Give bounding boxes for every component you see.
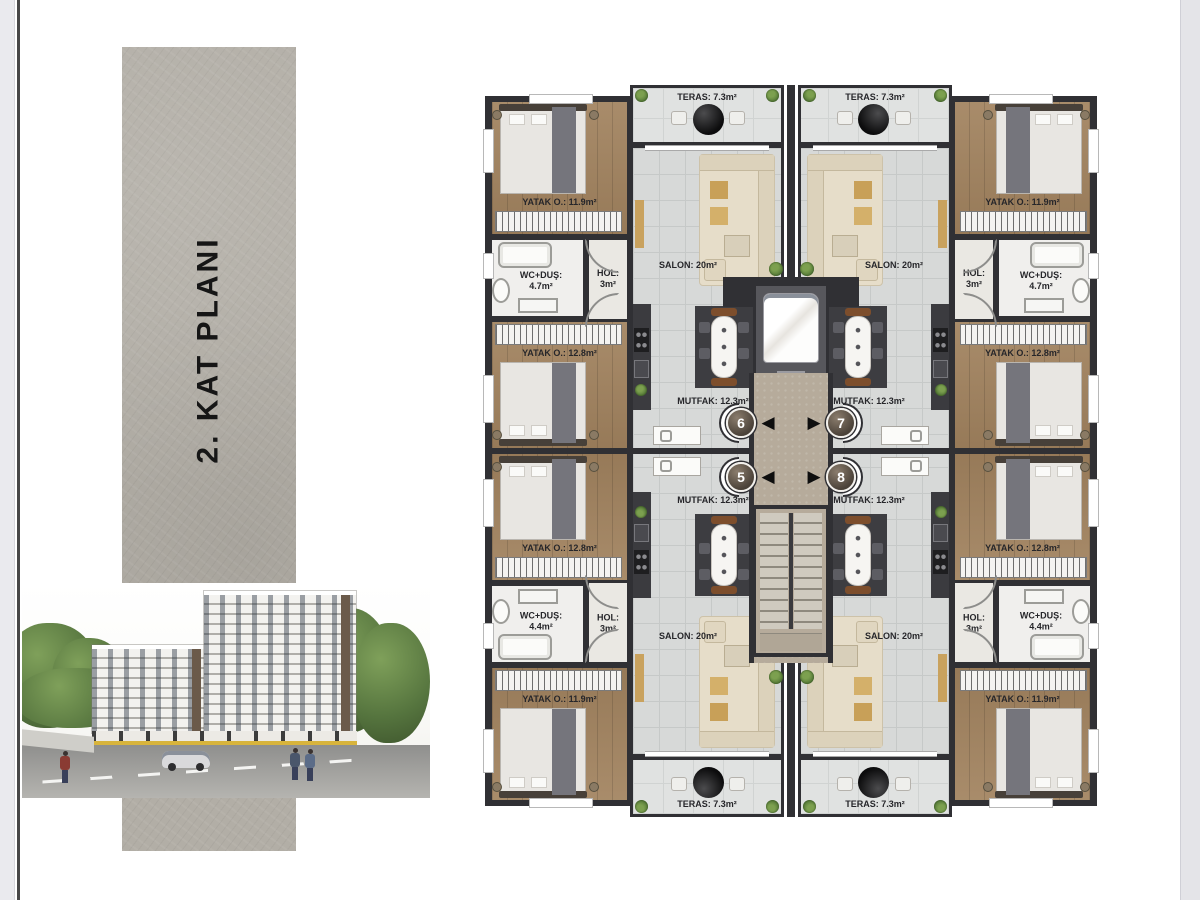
living-kitchen: SALON: 20m² MUTFAK: 12.3m² [798,145,952,451]
dining-bench [711,516,737,524]
room-label-teras: TERAS: 7.3m² [805,799,945,810]
dining-table [845,316,871,378]
terrace-chair [729,111,745,125]
room-label-hol: HOL: 3m² [955,268,993,290]
nightstand [589,110,599,120]
nightstand [492,462,502,472]
pillow [509,466,525,477]
oven-icon [634,524,649,542]
wc-area: 4.7m² [1006,281,1076,292]
dining-chair [872,569,883,580]
cushion [854,207,872,225]
terrace-table [858,104,889,135]
window [483,253,494,279]
cushion [854,703,872,721]
pillow [509,114,525,125]
terrace: TERAS: 7.3m² [798,757,952,817]
dining-chair [738,348,749,359]
cushion [710,181,728,199]
nightstand [492,782,502,792]
terrace: TERAS: 7.3m² [630,757,784,817]
bedroom-1: YATAK O.: 11.9m² [952,665,1093,803]
window [1088,479,1099,527]
tv-unit [938,654,947,702]
bathroom: WC+DUŞ: 4.4m² [489,583,586,665]
dining-chair [833,543,844,554]
wc-area: 4.4m² [1006,621,1076,632]
wardrobe [495,670,622,691]
hol-name: HOL: [955,612,993,623]
dining-bench [711,378,737,386]
terrace-chair [671,777,687,791]
room-label-wc: WC+DUŞ: 4.4m² [506,610,576,632]
terrace: TERAS: 7.3m² [798,85,952,145]
wardrobe [960,324,1087,345]
dining-chair [699,543,710,554]
bed-runner [1006,459,1030,539]
window [1088,729,1099,773]
bed [500,458,586,540]
plant-icon [766,800,779,813]
apartment-unit: YATAK O.: 11.9m² WC+DUŞ: 4.4m² HOL: 3m² … [483,451,791,817]
window [483,623,494,649]
wardrobe [495,324,622,345]
left-edge-bar [0,0,15,900]
dining-table [845,524,871,586]
window [483,375,494,423]
pillow [1057,425,1073,436]
stove-icon [933,328,948,352]
plant-icon [934,800,947,813]
page: 2. KAT PLANI [0,0,1200,900]
room-label-teras: TERAS: 7.3m² [805,92,945,103]
floor-plan-units: YATAK O.: 11.9m² WC+DUŞ: 4.7m² HOL: 3m² … [483,85,1099,817]
plant-icon [935,506,947,518]
coffee-table [832,235,858,257]
dining-area [829,514,887,596]
car [162,751,210,768]
pillow [531,466,547,477]
floor-plan: YATAK O.: 11.9m² WC+DUŞ: 4.7m² HOL: 3m² … [483,85,1099,817]
bathtub [1030,634,1084,660]
pillow [531,114,547,125]
bathtub [498,242,552,268]
nightstand [589,782,599,792]
bathtub [1030,242,1084,268]
room-label-salon: SALON: 20m² [633,260,743,271]
room-label-bedroom1: YATAK O.: 11.9m² [955,197,1090,208]
floor-title: 2. KAT PLANI [124,160,294,540]
pillow [1035,114,1051,125]
window [1088,623,1099,649]
window [989,798,1053,808]
pillow [1035,466,1051,477]
sofa-back [758,155,774,285]
sofa-arm [808,155,882,171]
wardrobe [495,211,622,232]
room-label-wc: WC+DUŞ: 4.7m² [506,270,576,292]
dining-table [711,316,737,378]
nightstand [983,462,993,472]
stair-shaft [341,595,350,731]
coffee-table [724,235,750,257]
left-edge-line [17,0,20,900]
hol-area: 3m² [955,279,993,290]
dining-area [695,306,753,388]
bed [996,708,1082,796]
room-label-bedroom1: YATAK O.: 11.9m² [492,197,627,208]
dining-area [695,514,753,596]
room-label-mutfak: MUTFAK: 12.3m² [809,396,929,407]
pillow [1057,466,1073,477]
room-label-bedroom2: YATAK O.: 12.8m² [492,348,627,359]
terrace-sliding-door [813,145,937,151]
pillow [531,425,547,436]
plant-icon [803,89,816,102]
pillow [1035,777,1051,788]
nightstand [983,110,993,120]
room-label-bedroom2: YATAK O.: 12.8m² [955,543,1090,554]
nightstand [983,782,993,792]
room-label-wc: WC+DUŞ: 4.4m² [1006,610,1076,632]
nightstand [983,430,993,440]
oven-icon [933,360,948,378]
dining-chair [738,543,749,554]
sink [518,589,558,604]
sofa-arm [700,731,774,747]
tv-unit [635,654,644,702]
cushion [710,677,728,695]
bedroom-2: YATAK O.: 12.8m² [489,319,630,451]
room-label-salon: SALON: 20m² [839,631,949,642]
terrace-sliding-door [645,145,769,151]
wc-name: WC+DUŞ: [1006,610,1076,621]
dining-chair [872,543,883,554]
terrace-table [858,767,889,798]
dining-bench [711,308,737,316]
dining-chair [699,348,710,359]
terrace-table [693,104,724,135]
nightstand [1080,462,1090,472]
pedestrian [305,749,315,781]
nightstand [492,430,502,440]
oven-icon [634,360,649,378]
nightstand [492,110,502,120]
living-kitchen: SALON: 20m² MUTFAK: 12.3m² [630,451,784,757]
bed-runner [1006,709,1030,795]
dining-chair [833,322,844,333]
plant-icon [803,800,816,813]
terrace-chair [895,777,911,791]
room-label-mutfak: MUTFAK: 12.3m² [809,495,929,506]
stove-icon [634,328,649,352]
window [483,129,494,173]
terrace-chair [895,111,911,125]
cushion [710,703,728,721]
hol-area: 3m² [589,279,627,290]
kitchen-sink [653,426,701,445]
room-label-bedroom2: YATAK O.: 12.8m² [955,348,1090,359]
wardrobe [960,670,1087,691]
plant-icon [635,506,647,518]
bedroom-2: YATAK O.: 12.8m² [952,319,1093,451]
room-label-teras: TERAS: 7.3m² [637,92,777,103]
tv-unit [938,200,947,248]
cushion [854,181,872,199]
plant-icon [635,384,647,396]
sofa-back [808,617,824,747]
bedroom-2: YATAK O.: 12.8m² [952,451,1093,583]
dining-chair [699,569,710,580]
hol-name: HOL: [589,612,627,623]
wc-area: 4.7m² [506,281,576,292]
bed [500,362,586,444]
apartment-building-left [92,645,207,733]
dining-area [829,306,887,388]
sink [1024,589,1064,604]
room-label-mutfak: MUTFAK: 12.3m² [653,495,773,506]
bathroom: WC+DUŞ: 4.7m² [489,237,586,319]
kitchen-sink [653,457,701,476]
pillow [509,425,525,436]
apartment-unit: YATAK O.: 11.9m² WC+DUŞ: 4.7m² HOL: 3m² … [483,85,791,451]
window [483,729,494,773]
wc-area: 4.4m² [506,621,576,632]
tv-unit [635,200,644,248]
kitchen-sink [881,426,929,445]
nightstand [1080,782,1090,792]
plant-icon [635,89,648,102]
stair-shaft [192,649,201,733]
bedroom-2: YATAK O.: 12.8m² [489,451,630,583]
sofa-arm [808,731,882,747]
wc-name: WC+DUŞ: [506,610,576,621]
dining-bench [845,516,871,524]
nightstand [589,430,599,440]
window [1088,129,1099,173]
kitchen-sink [881,457,929,476]
plant-icon [935,384,947,396]
bedroom-1: YATAK O.: 11.9m² [952,99,1093,237]
window [529,94,593,104]
right-edge-bar [1180,0,1200,900]
stove-icon [634,550,649,574]
pedestrian [60,751,70,783]
bedroom-1: YATAK O.: 11.9m² [489,665,630,803]
bed-runner [1006,107,1030,193]
window [1088,375,1099,423]
living-kitchen: SALON: 20m² MUTFAK: 12.3m² [630,145,784,451]
dining-bench [845,378,871,386]
bed [996,106,1082,194]
building-render [22,583,430,798]
bathroom: WC+DUŞ: 4.7m² [996,237,1093,319]
bed-runner [1006,363,1030,443]
coffee-table [724,645,750,667]
bed [500,708,586,796]
dining-chair [833,348,844,359]
room-label-salon: SALON: 20m² [839,260,949,271]
bed [500,106,586,194]
terrace-chair [837,777,853,791]
bed-runner [552,107,576,193]
dining-bench [711,586,737,594]
oven-icon [933,524,948,542]
wc-name: WC+DUŞ: [506,270,576,281]
window [989,94,1053,104]
bathroom: WC+DUŞ: 4.4m² [996,583,1093,665]
plant-icon [635,800,648,813]
coffee-table [832,645,858,667]
window [529,798,593,808]
bed-runner [552,709,576,795]
terrace-chair [837,111,853,125]
room-label-bedroom1: YATAK O.: 11.9m² [492,694,627,705]
sofa-back [758,617,774,747]
sofa-back [808,155,824,285]
bed-runner [552,459,576,539]
dining-bench [845,586,871,594]
living-kitchen: SALON: 20m² MUTFAK: 12.3m² [798,451,952,757]
room-label-salon: SALON: 20m² [633,631,743,642]
nightstand [1080,430,1090,440]
apartment-unit: YATAK O.: 11.9m² WC+DUŞ: 4.7m² HOL: 3m² … [791,85,1099,451]
bed [996,362,1082,444]
room-label-bedroom1: YATAK O.: 11.9m² [955,694,1090,705]
plant-icon [934,89,947,102]
dining-table [711,524,737,586]
bed-runner [552,363,576,443]
cushion [710,207,728,225]
apartment-building-right [204,591,356,731]
floor-title-text: 2. KAT PLANI [192,236,226,463]
cushion [854,677,872,695]
pillow [531,777,547,788]
terrace-chair [671,111,687,125]
window [483,479,494,527]
road [22,745,430,798]
terrace-sliding-door [813,751,937,757]
dining-chair [872,348,883,359]
pillow [1057,114,1073,125]
plant-icon [766,89,779,102]
wc-name: WC+DUŞ: [1006,270,1076,281]
dining-chair [872,322,883,333]
nightstand [1080,110,1090,120]
pillow [1035,425,1051,436]
dining-chair [738,322,749,333]
apartment-unit: YATAK O.: 11.9m² WC+DUŞ: 4.4m² HOL: 3m² … [791,451,1099,817]
ground-floor-pillars [92,731,357,745]
pillow [1057,777,1073,788]
dining-chair [738,569,749,580]
dining-chair [699,322,710,333]
sink [518,298,558,313]
room-label-bedroom2: YATAK O.: 12.8m² [492,543,627,554]
dining-chair [833,569,844,580]
terrace-chair [729,777,745,791]
sofa-arm [700,155,774,171]
bathtub [498,634,552,660]
terrace-table [693,767,724,798]
bed [996,458,1082,540]
pedestrian [290,748,300,780]
room-label-teras: TERAS: 7.3m² [637,799,777,810]
terrace: TERAS: 7.3m² [630,85,784,145]
room-label-mutfak: MUTFAK: 12.3m² [653,396,773,407]
tree-icon [354,623,430,743]
room-label-wc: WC+DUŞ: 4.7m² [1006,270,1076,292]
nightstand [589,462,599,472]
sink [1024,298,1064,313]
window [1088,253,1099,279]
wardrobe [960,211,1087,232]
stove-icon [933,550,948,574]
dining-bench [845,308,871,316]
bedroom-1: YATAK O.: 11.9m² [489,99,630,237]
terrace-sliding-door [645,751,769,757]
pillow [509,777,525,788]
